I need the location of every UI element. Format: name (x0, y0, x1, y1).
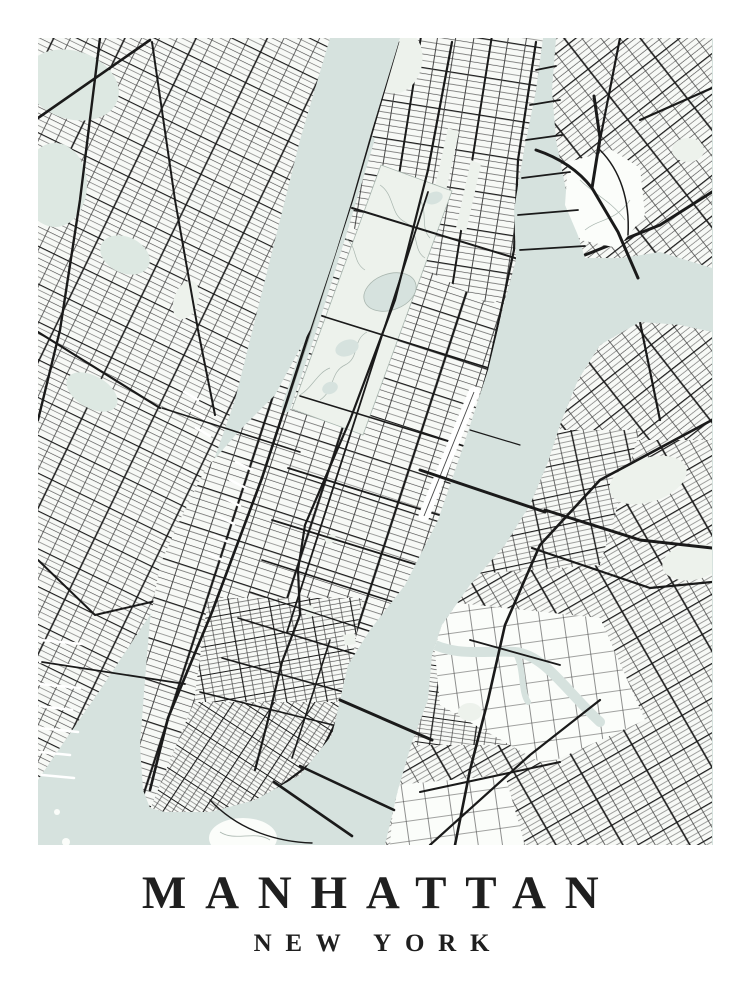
ellis-island (54, 809, 60, 815)
poster-title: MANHATTAN (0, 868, 750, 920)
liberty-island (62, 838, 70, 846)
manhattan-street-map (0, 0, 750, 860)
poster-caption: MANHATTAN NEW YORK (0, 868, 750, 957)
map-poster: MANHATTAN NEW YORK (0, 0, 750, 1000)
poster-subtitle: NEW YORK (0, 930, 750, 958)
tompkins-square (343, 633, 356, 646)
governors-island (209, 818, 277, 858)
